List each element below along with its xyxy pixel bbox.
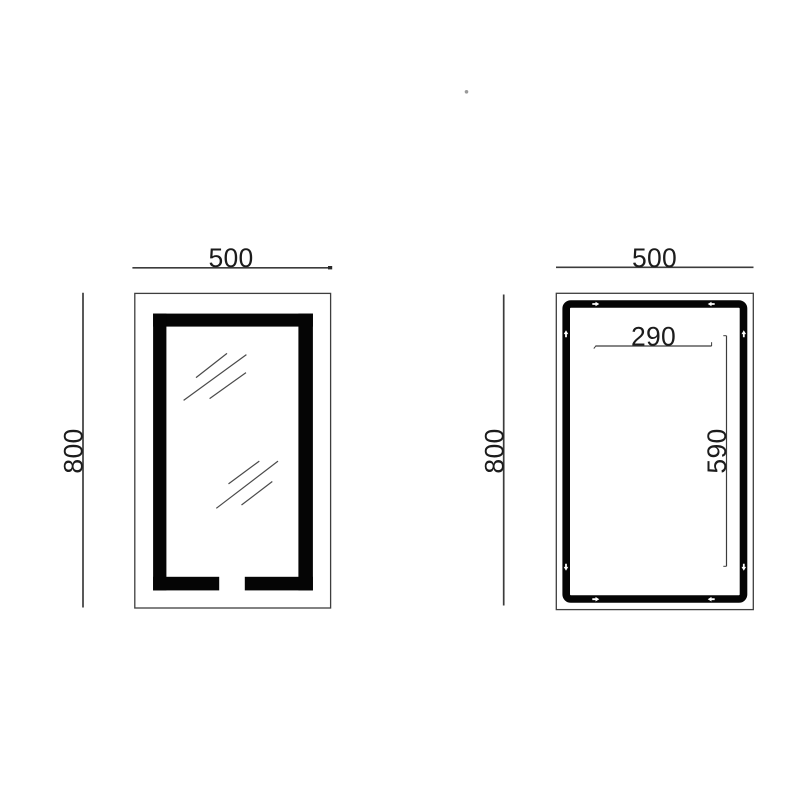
svg-text:500: 500 (208, 243, 253, 273)
svg-text:800: 800 (480, 428, 510, 473)
svg-text:800: 800 (59, 428, 89, 473)
svg-text:500: 500 (632, 243, 677, 273)
svg-text:590: 590 (702, 428, 732, 473)
svg-text:290: 290 (631, 322, 676, 352)
